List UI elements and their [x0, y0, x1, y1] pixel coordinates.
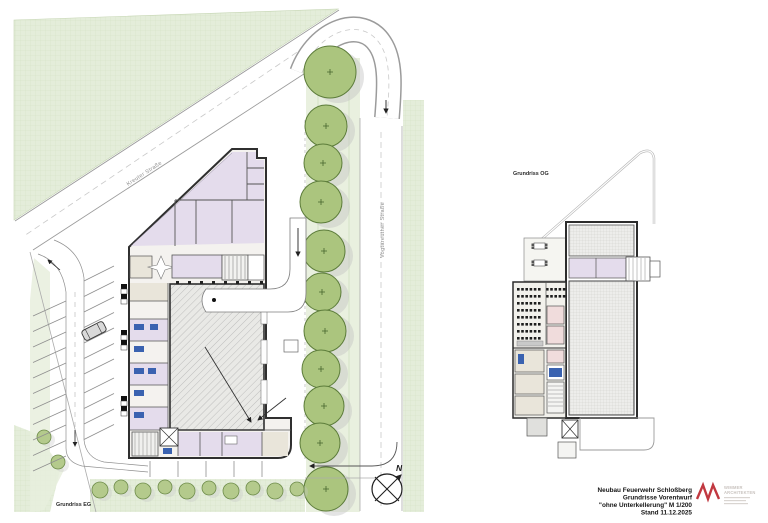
grass-west-sliver [30, 258, 64, 512]
logo-w-icon [697, 485, 719, 499]
og-room-north [569, 225, 634, 256]
project-subtitle: Grundrisse Vorentwurf [623, 495, 693, 502]
airspace-over-hall [569, 281, 634, 415]
og-corridor-rooms [569, 258, 626, 278]
stair-og [626, 257, 650, 281]
site-plan-eg: Kreuter Straße Vogtareuther Straße Grund… [14, 9, 424, 516]
lectern [517, 341, 543, 346]
stair-og-west [547, 382, 564, 413]
floor-plan-title: Grundriss OG [513, 171, 549, 177]
title-block: Neubau Feuerwehr Schloßberg Grundrisse V… [598, 485, 756, 517]
hall-door [261, 340, 267, 364]
og-stub-room-2 [558, 442, 576, 458]
architect-logo: WIMMER ARCHITEKTEN [697, 485, 756, 504]
roof-terrace [524, 238, 566, 281]
grass-triangle-north [14, 9, 338, 220]
south-parking-ticks [150, 461, 262, 477]
terrace-table [532, 260, 548, 266]
canopy-outline [580, 418, 654, 450]
dimension-bars [121, 284, 127, 416]
og-west-wing [513, 282, 566, 418]
street-label-kreuter: Kreuter Straße [126, 160, 164, 187]
drawing-sheet: Kreuter Straße Vogtareuther Straße Grund… [0, 0, 768, 523]
project-date: Stand 11.12.2025 [641, 510, 693, 517]
yard-utility-box [284, 340, 298, 352]
north-arrow: N [372, 463, 403, 504]
stair-eg [222, 255, 248, 280]
og-stub-room [527, 418, 547, 436]
hall-door [261, 380, 267, 404]
architectural-drawing: Kreuter Straße Vogtareuther Straße Grund… [0, 0, 768, 523]
terrace-table [532, 243, 548, 249]
stair-south [132, 432, 158, 456]
grass-strip-far-east [403, 100, 424, 512]
project-scale: "ohne Unterkellerung" M 1/200 [599, 502, 693, 509]
project-title: Neubau Feuerwehr Schloßberg [598, 487, 693, 494]
south-wing [130, 428, 291, 456]
north-label: N [396, 463, 403, 473]
site-plan-title: Grundriss EG [56, 502, 91, 508]
mezzanine-room [172, 255, 222, 278]
street-label-vogtareuther: Vogtareuther Straße [380, 202, 386, 258]
logo-name-2: ARCHITEKTEN [724, 490, 756, 495]
floor-plan-og: Grundriss OG [513, 151, 660, 458]
